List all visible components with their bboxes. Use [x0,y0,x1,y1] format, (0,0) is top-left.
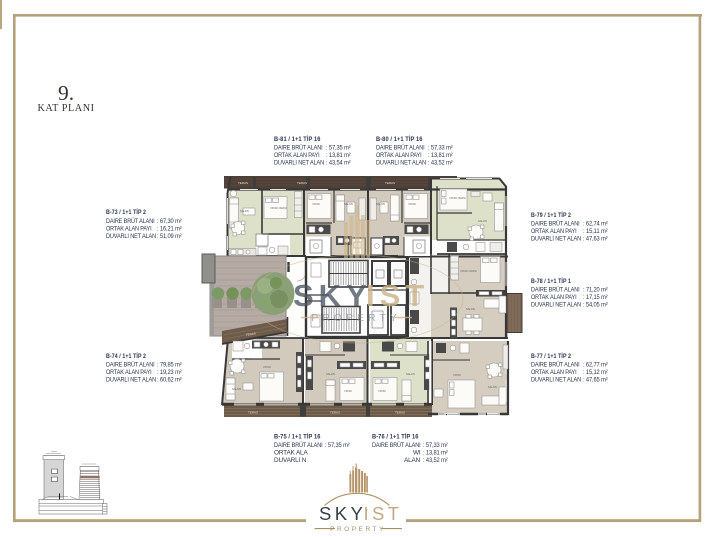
svg-text:: 67,30 m²: : 67,30 m² [157,218,182,225]
svg-text:: 43,52 m²: : 43,52 m² [423,457,448,464]
svg-text:: 13,81 m²: : 13,81 m² [326,152,351,159]
svg-text:: 17,15 m²: : 17,15 m² [583,294,608,301]
svg-text:SKY: SKY [293,278,372,313]
svg-text:PROPERTY: PROPERTY [330,526,386,533]
svg-text:: 57,35 m²: : 57,35 m² [326,145,351,152]
svg-text:ORTAK ALAN PAYI: ORTAK ALAN PAYI [106,369,152,376]
svg-text:: 57,35 m²: : 57,35 m² [325,442,350,449]
svg-text:YATAK: YATAK [408,202,416,206]
svg-text:YATAK ODASI: YATAK ODASI [270,206,287,210]
svg-text:: 54,05 m²: : 54,05 m² [583,302,608,309]
svg-text:SALON: SALON [344,202,353,206]
svg-text:YATAK: YATAK [263,365,271,369]
svg-text:YATAK: YATAK [453,373,461,377]
svg-text:DUVARLI NET ALAN: DUVARLI NET ALAN [376,160,426,167]
svg-text:: 15,12 m²: : 15,12 m² [583,369,608,376]
svg-text:DAIRE BRÜT ALANI: DAIRE BRÜT ALANI [531,286,580,294]
svg-text:SALON: SALON [326,372,335,376]
svg-text:DAIRE BRÜT ALANI: DAIRE BRÜT ALANI [106,361,155,369]
svg-text:: 57,33 m²: : 57,33 m² [428,145,453,152]
svg-text:: 47,63 m²: : 47,63 m² [583,236,608,243]
svg-text:: 79,85 m²: : 79,85 m² [157,362,182,369]
svg-text:: 62,77 m²: : 62,77 m² [583,362,608,369]
svg-text:TERAS: TERAS [297,181,307,185]
svg-text:B-76 / 1+1 TİP 16: B-76 / 1+1 TİP 16 [372,433,419,441]
svg-text:SALON: SALON [488,385,497,389]
svg-text:ORTAK ALAN PAYI: ORTAK ALAN PAYI [531,228,577,235]
svg-text:DAIRE BRÜT ALANI: DAIRE BRÜT ALANI [372,441,421,449]
svg-text:TERAS: TERAS [248,411,258,415]
svg-text:TERAS: TERAS [385,181,395,185]
svg-text:SALON: SALON [232,387,241,391]
svg-text:SALON: SALON [466,307,475,311]
svg-text:: 13,81 m²: : 13,81 m² [428,152,453,159]
svg-text:DUVARLI NET ALAN: DUVARLI NET ALAN [106,377,156,384]
svg-text:: 71,20 m²: : 71,20 m² [583,287,608,294]
svg-text:YATAK: YATAK [378,389,386,393]
svg-text:B-74 / 1+1 TİP 2: B-74 / 1+1 TİP 2 [106,352,146,360]
svg-text:: 47,65 m²: : 47,65 m² [583,377,608,384]
svg-text:: 60,62 m²: : 60,62 m² [157,377,182,384]
svg-text:WI: WI [413,450,421,457]
svg-text:SALON: SALON [478,219,487,223]
svg-text:DAIRE BRÜT ALANI: DAIRE BRÜT ALANI [531,361,580,369]
svg-text:YATAK ODASI: YATAK ODASI [449,196,466,200]
svg-text:: 19,23 m²: : 19,23 m² [157,369,182,376]
svg-text:B-77 / 1+1 TİP 2: B-77 / 1+1 TİP 2 [531,352,571,360]
svg-text:MUTFAK: MUTFAK [240,357,251,361]
svg-text:: 13,81 m²: : 13,81 m² [423,450,448,457]
svg-text:DUVARLI NET ALAN: DUVARLI NET ALAN [531,377,581,384]
svg-text:SALON: SALON [240,209,249,213]
svg-text:ORTAK ALAN PAYI: ORTAK ALAN PAYI [274,152,320,159]
svg-text:: 16,21 m²: : 16,21 m² [157,226,182,233]
svg-text:SKY: SKY [319,503,366,524]
svg-text:ALAN: ALAN [404,457,421,464]
svg-text:B-75 / 1+1 TİP 16: B-75 / 1+1 TİP 16 [274,433,321,441]
svg-text:TERAS: TERAS [330,411,340,415]
svg-text:: 15,11 m²: : 15,11 m² [583,228,608,235]
svg-text:DUVARLI NET ALAN: DUVARLI NET ALAN [274,160,324,167]
svg-text:B-78 / 1+1 TİP 1: B-78 / 1+1 TİP 1 [531,277,571,285]
svg-text:DAIRE BRÜT ALANI: DAIRE BRÜT ALANI [531,220,580,228]
svg-text:B-79 / 1+1 TİP 2: B-79 / 1+1 TİP 2 [531,211,571,219]
svg-text:YATAK: YATAK [312,202,320,206]
svg-text:DUVARLI NET ALAN: DUVARLI NET ALAN [531,302,581,309]
svg-text:B-81 / 1+1 TİP 16: B-81 / 1+1 TİP 16 [274,135,321,143]
svg-text:YATAK ODASI: YATAK ODASI [460,269,477,273]
svg-text:: 57,33 m²: : 57,33 m² [423,442,448,449]
svg-text:KAT PLANI: KAT PLANI [37,103,94,114]
svg-text:SALON: SALON [376,202,385,206]
svg-text:DAIRE BRÜT ALANI: DAIRE BRÜT ALANI [274,144,323,152]
svg-text:ORTAK ALAN PAYI: ORTAK ALAN PAYI [106,226,152,233]
svg-text:TERAS: TERAS [395,411,405,415]
svg-text:TERAS: TERAS [238,181,248,185]
svg-text:ORTAK ALAN PAYI: ORTAK ALAN PAYI [531,294,577,301]
svg-text:ORTAK ALAN PAYI: ORTAK ALAN PAYI [531,369,577,376]
svg-text:DUVARLI NET ALAN: DUVARLI NET ALAN [106,233,156,240]
svg-text:: 51,09 m²: : 51,09 m² [157,233,182,240]
svg-text:B-73 / 1+1 TİP 2: B-73 / 1+1 TİP 2 [106,208,146,216]
svg-text:SALON: SALON [406,372,415,376]
svg-text:ORTAK ALAN PAYI: ORTAK ALAN PAYI [376,152,422,159]
svg-text:9.: 9. [58,81,74,105]
svg-text:: 43,52 m²: : 43,52 m² [428,160,453,167]
svg-text:IST: IST [364,503,403,524]
svg-text:YATAK: YATAK [344,389,352,393]
svg-text:B-80 / 1+1 TİP 16: B-80 / 1+1 TİP 16 [376,135,423,143]
svg-text:: 62,74 m²: : 62,74 m² [583,221,608,228]
svg-text:DUVARLI N: DUVARLI N [274,457,307,464]
svg-text:DAIRE BRÜT ALANI: DAIRE BRÜT ALANI [274,441,323,449]
svg-text:DUVARLI NET ALAN: DUVARLI NET ALAN [531,236,581,243]
svg-text:: 43,54 m²: : 43,54 m² [326,160,351,167]
svg-text:PROPERTY: PROPERTY [311,312,401,324]
svg-text:DAIRE BRÜT ALANI: DAIRE BRÜT ALANI [106,217,155,225]
svg-text:ORTAK ALA: ORTAK ALA [274,450,308,457]
svg-text:DAIRE BRÜT ALANI: DAIRE BRÜT ALANI [376,144,425,152]
svg-text:IST: IST [366,278,429,313]
